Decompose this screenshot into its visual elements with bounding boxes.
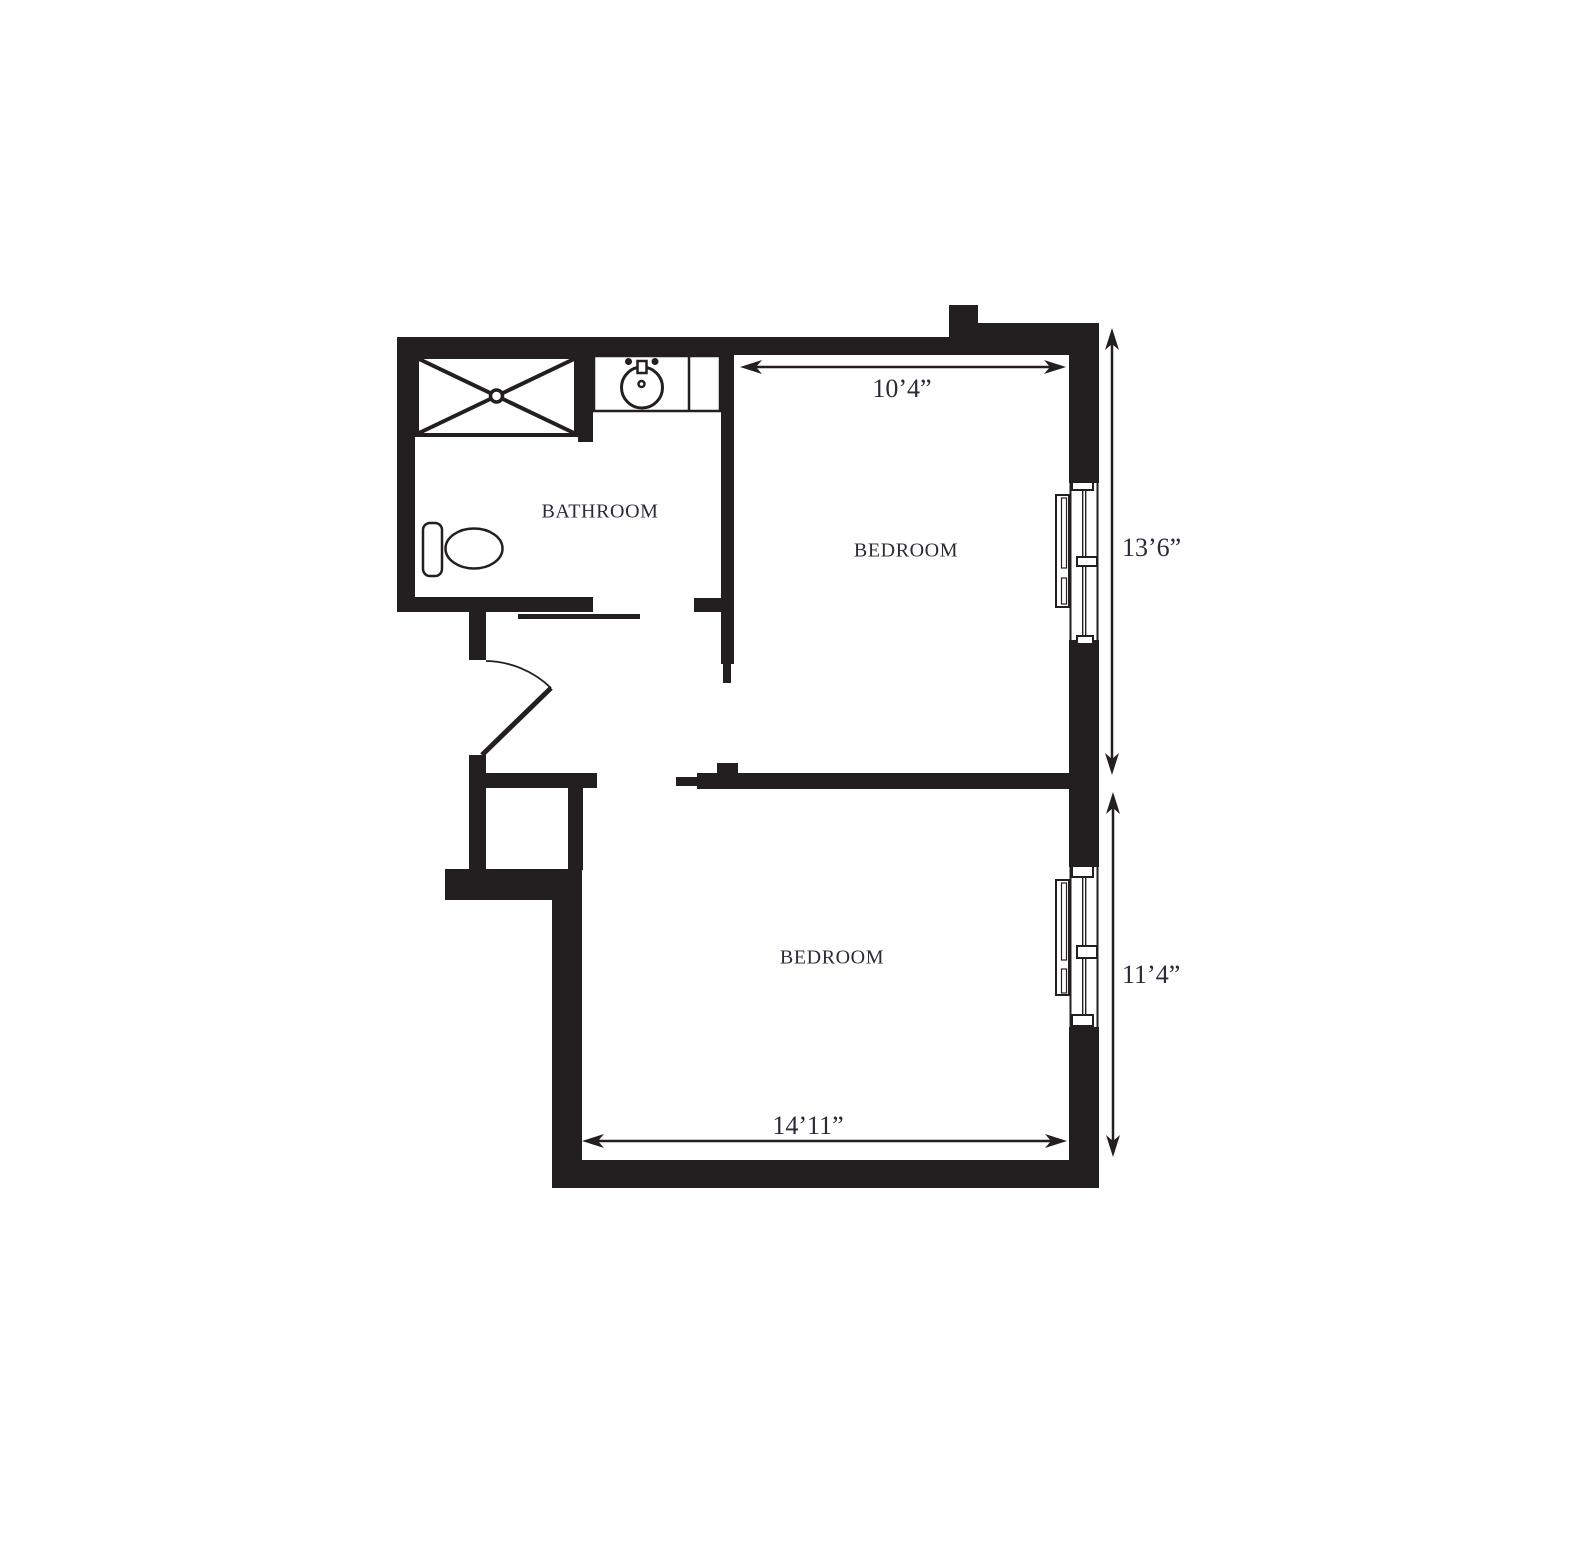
top-wall-left xyxy=(397,337,978,355)
closet-right-wall xyxy=(568,788,583,870)
left-wall-bathroom xyxy=(397,337,415,612)
sink-icon xyxy=(622,358,663,408)
entry-door-jamb-upper xyxy=(469,612,486,660)
bathroom-bedroom-partition xyxy=(721,355,734,664)
dimension-arrow-bedroom-top-depth xyxy=(1105,328,1119,775)
partition-jamb-stub xyxy=(723,664,731,683)
top-wall-bump xyxy=(949,305,978,355)
bedroom-bottom-label: BEDROOM xyxy=(780,947,884,970)
shower-icon xyxy=(417,357,576,435)
shower-divider-stub xyxy=(578,355,593,442)
floor-plan: BATHROOM BEDROOM BEDROOM 10’4” 13’6” 11’… xyxy=(0,0,1580,1566)
middle-dividing-wall xyxy=(697,773,1069,789)
closet-left-wall xyxy=(469,755,486,870)
swing-door-icon xyxy=(482,661,551,755)
bathroom-south-wall xyxy=(397,597,593,612)
dimension-arrow-bedroom-top-width xyxy=(740,360,1066,374)
dimension-label-bedroom-top-depth: 13’6” xyxy=(1122,533,1181,563)
bedroom-bottom-left-wall xyxy=(552,900,582,1161)
bathroom-south-wall-stub xyxy=(694,598,721,612)
step-wall xyxy=(445,869,582,900)
window-icon-bottom xyxy=(1056,866,1098,1027)
bottom-wall xyxy=(552,1160,1099,1188)
bathroom-label: BATHROOM xyxy=(541,501,658,524)
right-wall-upper xyxy=(1069,323,1099,483)
right-wall-middle xyxy=(1069,640,1099,867)
bedroom-top-label: BEDROOM xyxy=(854,540,958,563)
floor-plan-drawing xyxy=(0,0,1580,1566)
middle-wall-left-stub xyxy=(676,777,697,786)
closet-top-wall xyxy=(486,773,597,788)
window-icon-top xyxy=(1056,482,1098,644)
toilet-icon xyxy=(423,523,503,576)
walls xyxy=(397,305,1099,1188)
middle-wall-tab xyxy=(717,763,738,775)
dimension-label-bedroom-bottom-width: 14’11” xyxy=(772,1111,843,1141)
dimension-arrow-bedroom-bottom-depth xyxy=(1106,792,1120,1157)
dimension-label-bedroom-bottom-depth: 11’4” xyxy=(1122,960,1180,990)
dimension-label-bedroom-top-width: 10’4” xyxy=(872,374,931,404)
